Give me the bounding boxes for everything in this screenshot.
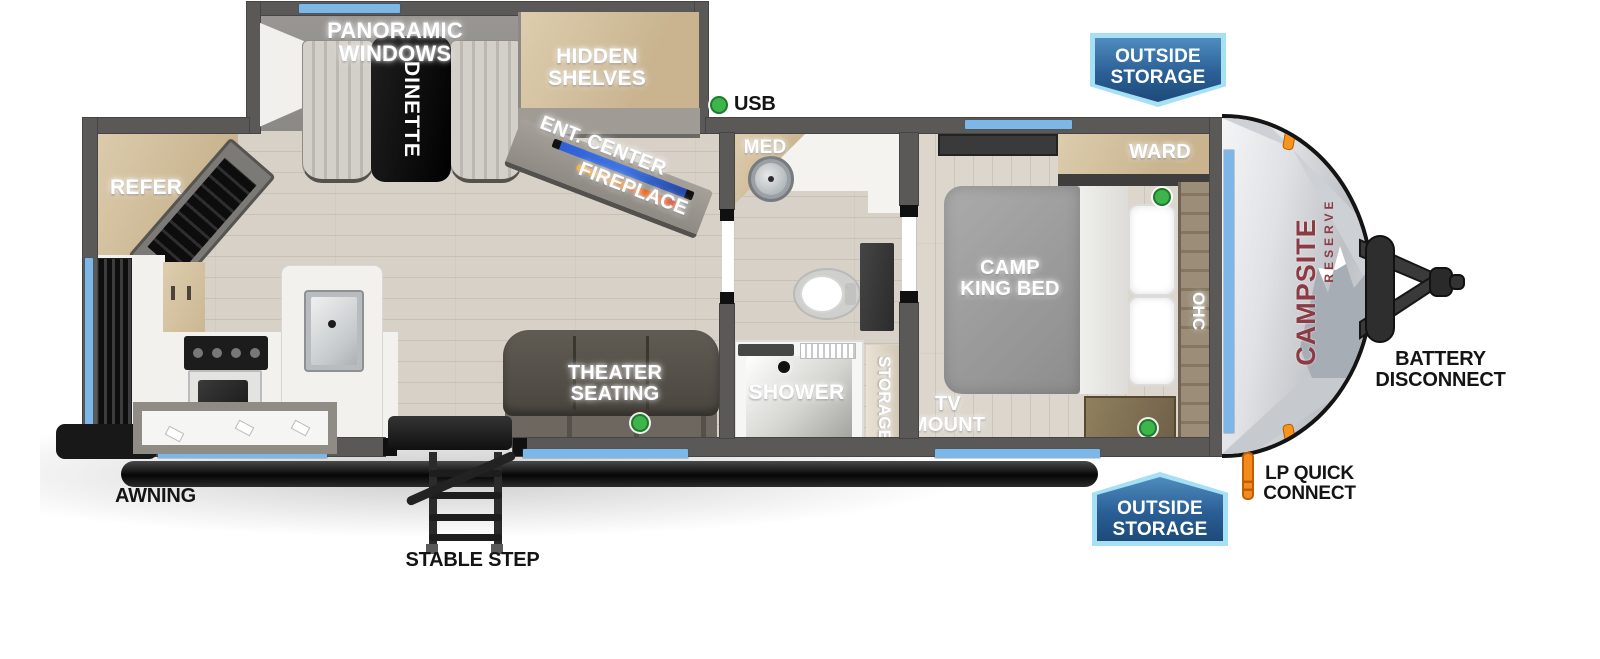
bedroom-usb-indicator-dot-bottom (1139, 419, 1157, 437)
bedroom-vent (938, 134, 1058, 156)
toilet (795, 270, 859, 318)
shower-label: SHOWER (734, 382, 859, 404)
slideout-wall-left (247, 2, 260, 133)
bath-wall-right-upper (900, 133, 918, 205)
awning-label: AWNING (113, 486, 198, 507)
tv-mount-label: TV MOUNT (908, 394, 988, 436)
brand-name: CAMPSITE (1291, 182, 1321, 402)
bed-pillow-bottom (1128, 296, 1176, 386)
bed-sheet (1080, 186, 1128, 394)
lp-quick-connect-label: LP QUICK CONNECT (1262, 464, 1357, 504)
dinette-label: DINETTE (399, 61, 423, 158)
bed-pillow-top (1128, 204, 1176, 296)
bedroom-usb-indicator-dot-top (1153, 188, 1171, 206)
bath-counter-side (868, 133, 902, 213)
window-accent-rear (85, 258, 93, 426)
window-accent-bottom-bedroom (935, 449, 1100, 458)
window-accent-bottom-mid (523, 449, 688, 458)
brand-series: RESERVE (1322, 185, 1338, 295)
storage-label: STORAGE (875, 356, 893, 441)
awning-roll (121, 461, 1098, 487)
hitch-assembly (1358, 226, 1468, 352)
outside-storage-banner-top: OUTSIDE STORAGE (1090, 33, 1226, 107)
stove-cooktop (184, 336, 268, 370)
outside-storage-banner-bottom-face: OUTSIDE STORAGE (1097, 477, 1223, 541)
med-label: MED (730, 138, 800, 158)
door-jamb (720, 209, 734, 221)
usb-indicator-dot (710, 96, 728, 114)
shower-head-dot (778, 361, 790, 373)
bath-wall-right-lower (900, 303, 918, 438)
bath-wall-left-lower (720, 304, 734, 438)
lp-hose (1242, 452, 1254, 500)
window-accent-front (1224, 150, 1234, 433)
bed-base-step (1084, 396, 1176, 442)
slideout-window-accent (299, 4, 400, 13)
refer-label: REFER (110, 177, 182, 199)
outside-storage-label-bottom: OUTSIDE STORAGE (1110, 499, 1210, 540)
bath-wall-left-upper (720, 133, 734, 209)
rv-floorplan-diagram: DINETTE PANORAMIC WINDOWS HIDDEN SHELVES… (0, 0, 1600, 659)
theater-usb-indicator-dot (631, 414, 649, 432)
bath-partition (860, 243, 894, 331)
pantry (98, 258, 132, 432)
wall-top-left (83, 118, 249, 133)
outside-storage-label-top: OUTSIDE STORAGE (1108, 47, 1208, 88)
ohc-label: OHC (1189, 292, 1207, 330)
panoramic-windows-label: PANORAMIC WINDOWS (270, 20, 520, 66)
entry-door-mat (388, 416, 512, 450)
bath-sink (748, 156, 794, 202)
door-jamb (900, 291, 918, 303)
kitchen-faucet (328, 320, 336, 328)
kitchen-sink (304, 290, 364, 372)
stable-step (400, 450, 530, 560)
outside-storage-banner-top-face: OUTSIDE STORAGE (1095, 38, 1221, 102)
camp-king-bed-label: CAMP KING BED (955, 258, 1065, 300)
theater-seating-label: THEATER SEATING (545, 363, 685, 405)
ward-label: WARD (1120, 142, 1200, 163)
door-jamb (900, 205, 918, 217)
storage-cabinet: STORAGE (866, 345, 902, 452)
fold-down-table (133, 402, 337, 454)
usb-label: USB (734, 94, 789, 115)
hidden-shelves-label: HIDDEN SHELVES (527, 46, 667, 90)
window-accent-bedroom-top (965, 120, 1072, 129)
battery-disconnect-label: BATTERY DISCONNECT (1368, 349, 1513, 391)
stable-step-label: STABLE STEP (405, 550, 540, 571)
door-jamb (720, 292, 734, 304)
